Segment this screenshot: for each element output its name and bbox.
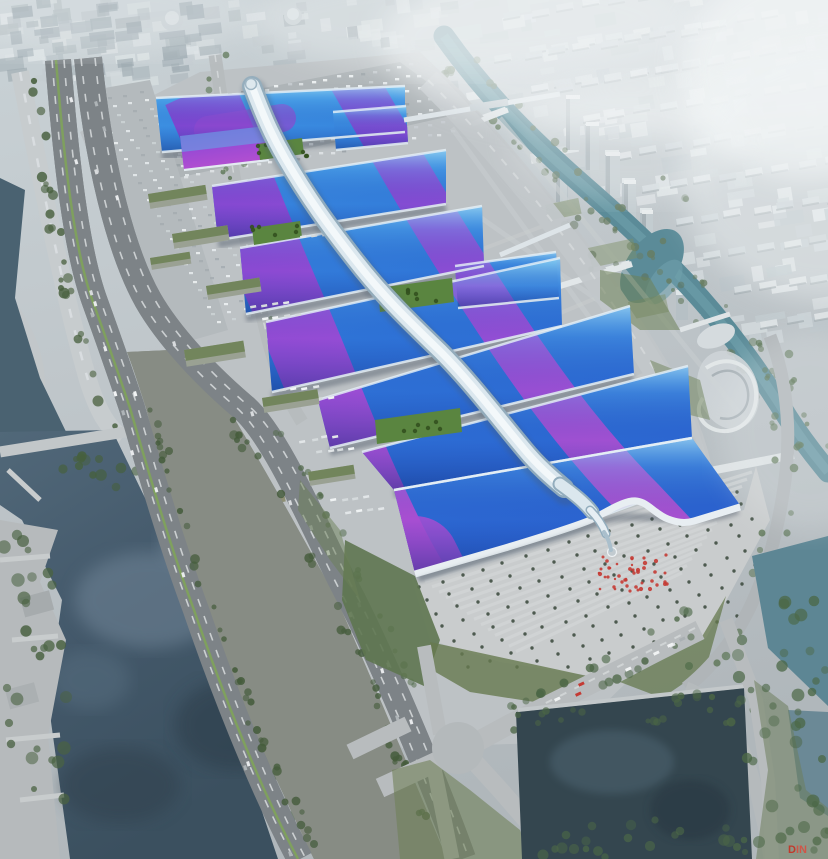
svg-text:DIN: DIN bbox=[788, 844, 807, 856]
